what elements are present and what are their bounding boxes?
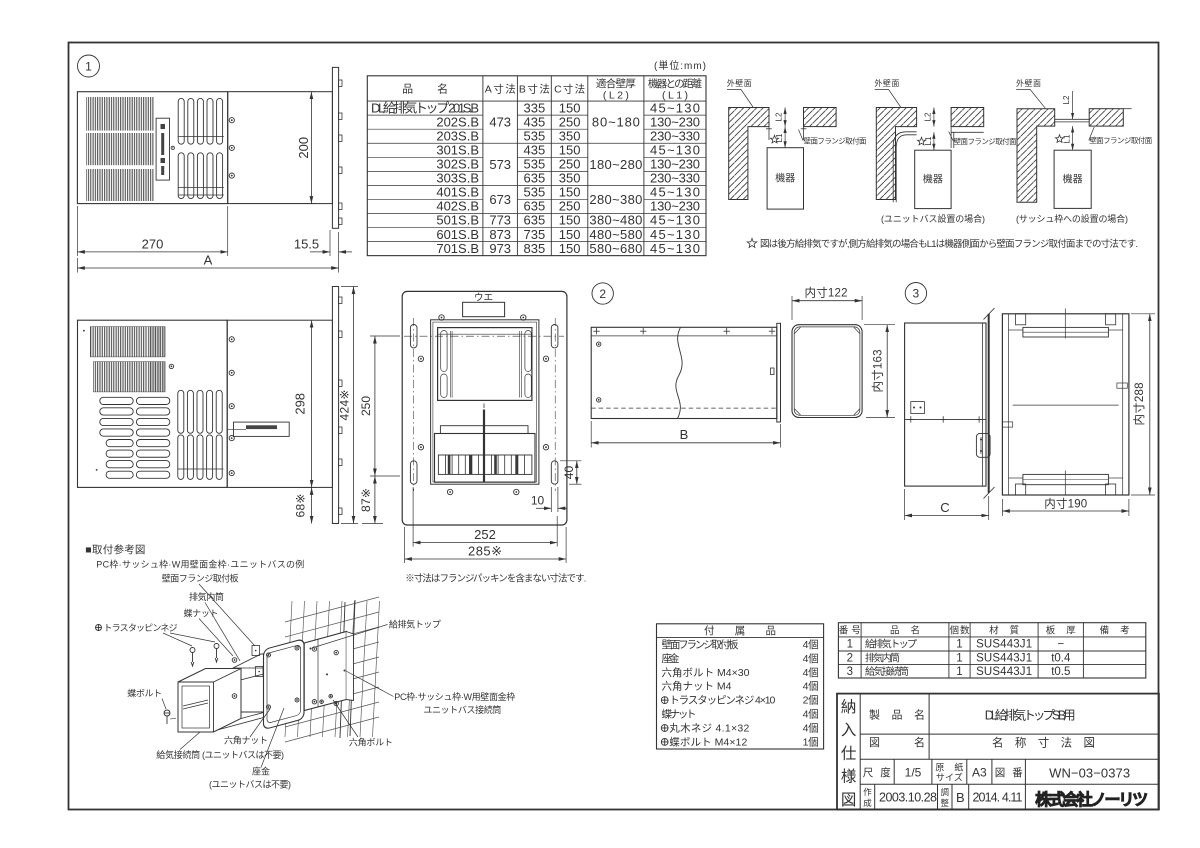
svg-text:302S.B: 302S.B	[436, 157, 479, 172]
svg-text:C寸法: C寸法	[554, 83, 585, 96]
svg-text:座金: 座金	[662, 652, 681, 665]
svg-text:203S.B: 203S.B	[436, 128, 479, 143]
svg-text:250: 250	[559, 157, 581, 172]
svg-text:2: 2	[847, 653, 853, 665]
svg-text:図 番: 図 番	[995, 767, 1023, 779]
svg-text:SUS443J1: SUS443J1	[976, 638, 1032, 650]
svg-text:付 属 品: 付 属 品	[704, 624, 776, 637]
svg-text:4個: 4個	[803, 721, 819, 734]
svg-text:773: 773	[489, 213, 511, 228]
svg-text:350: 350	[559, 128, 581, 143]
svg-text:六角ナット: 六角ナット	[224, 735, 268, 746]
svg-text:701S.B: 701S.B	[436, 241, 479, 256]
svg-text:298: 298	[293, 393, 308, 415]
svg-text:品 名: 品 名	[890, 624, 920, 636]
svg-text:4個: 4個	[803, 680, 819, 693]
svg-text:(ユニットバスは不要): (ユニットバスは不要)	[202, 750, 284, 760]
svg-text:六角ボルト: 六角ボルト	[349, 737, 393, 748]
svg-text:DL給排気トップ 201S.B: DL給排気トップ 201S.B	[371, 100, 479, 115]
svg-text:402S.B: 402S.B	[436, 199, 479, 214]
svg-text:機器との距離: 機器との距離	[648, 77, 703, 90]
svg-text:番号: 番号	[839, 624, 861, 636]
svg-text:蝶ボルト: 蝶ボルト	[127, 688, 162, 699]
svg-text:A3: A3	[972, 766, 987, 780]
svg-text:※寸法はフランジパッキンを含まない寸法です.: ※寸法はフランジパッキンを含まない寸法です.	[405, 573, 586, 585]
svg-text:1: 1	[85, 60, 92, 74]
svg-text:内寸163: 内寸163	[871, 350, 885, 393]
svg-text:130~230: 130~230	[650, 157, 700, 172]
svg-text:仕: 仕	[841, 744, 857, 762]
svg-text:280~380: 280~380	[589, 192, 642, 207]
svg-text:4個: 4個	[803, 652, 819, 665]
svg-text:150: 150	[559, 142, 581, 157]
svg-text:45~130: 45~130	[650, 227, 700, 242]
svg-text:180~280: 180~280	[589, 157, 642, 172]
svg-text:473: 473	[489, 115, 511, 130]
svg-text:機器: 機器	[775, 172, 795, 185]
svg-text:301S.B: 301S.B	[436, 142, 479, 157]
svg-text:(サッシュ枠への設置の場合): (サッシュ枠への設置の場合)	[1016, 213, 1128, 224]
svg-text:335: 335	[524, 100, 546, 115]
svg-text:入: 入	[841, 722, 857, 739]
svg-text:535: 535	[524, 157, 546, 172]
svg-text:270: 270	[142, 236, 164, 251]
svg-text:635: 635	[524, 213, 546, 228]
svg-text:六角ボルト M4×30: 六角ボルト M4×30	[662, 667, 750, 679]
svg-text:板 厚: 板 厚	[1046, 624, 1076, 636]
svg-text:B: B	[680, 427, 689, 442]
svg-text:SUS443J1: SUS443J1	[976, 666, 1032, 678]
svg-text:排気内筒: 排気内筒	[189, 591, 224, 602]
svg-text:t0.5: t0.5	[1051, 666, 1070, 678]
svg-text:4個: 4個	[803, 708, 819, 721]
svg-text:735: 735	[524, 227, 546, 242]
svg-text:外壁面: 外壁面	[874, 78, 899, 88]
svg-text:壁面フランジ取付面: 壁面フランジ取付面	[954, 136, 1018, 146]
svg-text:80~180: 80~180	[592, 115, 640, 130]
svg-text:673: 673	[489, 192, 511, 207]
svg-text:壁面フランジ取付面: 壁面フランジ取付面	[804, 136, 868, 146]
svg-text:535: 535	[524, 185, 546, 200]
svg-text:壁面フランジ取付板: 壁面フランジ取付板	[162, 573, 239, 584]
svg-text:501S.B: 501S.B	[436, 213, 479, 228]
svg-text:壁面フランジ取付面: 壁面フランジ取付面	[1089, 135, 1153, 145]
svg-text:蝶ナット: 蝶ナット	[184, 608, 219, 619]
svg-text:150: 150	[559, 241, 581, 256]
svg-text:150: 150	[559, 185, 581, 200]
svg-text:380~480: 380~480	[589, 213, 642, 228]
svg-text:備 考: 備 考	[1100, 624, 1130, 636]
svg-text:1/5: 1/5	[905, 766, 922, 780]
svg-text:45~130: 45~130	[650, 100, 700, 115]
svg-text:納: 納	[841, 698, 857, 716]
svg-text:名 称 寸 法 図: 名 称 寸 法 図	[992, 736, 1095, 750]
svg-text:製 品 名: 製 品 名	[869, 708, 925, 722]
svg-text:六角ナット M4: 六角ナット M4	[662, 681, 732, 693]
svg-text:250: 250	[559, 199, 581, 214]
svg-text:機器: 機器	[1063, 173, 1083, 186]
svg-text:外壁面: 外壁面	[1016, 78, 1041, 88]
svg-text:2: 2	[599, 287, 606, 301]
svg-text:L2: L2	[923, 112, 932, 121]
svg-text:内寸122: 内寸122	[805, 286, 848, 300]
svg-text:424※: 424※	[338, 390, 352, 421]
svg-text:トラスタッピンネジ: トラスタッピンネジ	[104, 623, 178, 633]
svg-text:130~230: 130~230	[650, 114, 700, 129]
svg-text:給排気トップ: 給排気トップ	[389, 619, 441, 630]
svg-text:サイズ: サイズ	[936, 772, 963, 783]
svg-text:250: 250	[559, 114, 581, 129]
svg-text:150: 150	[559, 100, 581, 115]
svg-text:C: C	[940, 500, 949, 515]
svg-text:68※: 68※	[294, 494, 308, 518]
svg-text:3: 3	[913, 287, 920, 301]
svg-text:B寸法: B寸法	[519, 83, 550, 96]
svg-text:1: 1	[847, 638, 853, 650]
svg-text:L1: L1	[775, 133, 784, 142]
svg-text:成: 成	[863, 798, 872, 808]
svg-text:図 名: 図 名	[869, 735, 925, 749]
svg-text:A寸法: A寸法	[485, 83, 516, 96]
svg-text:10: 10	[531, 494, 545, 508]
svg-text:調: 調	[940, 787, 949, 797]
svg-text:作: 作	[863, 787, 872, 797]
svg-text:L1: L1	[924, 136, 933, 145]
svg-text:45~130: 45~130	[650, 185, 700, 200]
svg-text:3: 3	[847, 666, 853, 678]
svg-text:250: 250	[359, 396, 373, 416]
svg-text:L2: L2	[1062, 95, 1071, 104]
svg-text:835: 835	[524, 241, 546, 256]
svg-text:200: 200	[296, 137, 311, 159]
svg-text:573: 573	[489, 157, 511, 172]
svg-text:435: 435	[524, 114, 546, 129]
svg-text:150: 150	[559, 213, 581, 228]
svg-text:230~330: 230~330	[650, 171, 700, 186]
svg-text:DL給排気トップS.B用: DL給排気トップS.B用	[985, 708, 1076, 723]
svg-text:給排気トップ: 給排気トップ	[865, 637, 917, 650]
svg-text:87※: 87※	[359, 488, 373, 512]
svg-text:品 名: 品 名	[402, 82, 448, 96]
svg-text:130~230: 130~230	[650, 199, 700, 214]
svg-text:株式会社ノーリツ: 株式会社ノーリツ	[1035, 790, 1148, 809]
svg-text:1: 1	[956, 666, 962, 678]
svg-text:873: 873	[489, 227, 511, 242]
svg-text:トラスタッピンネジ 4×10: トラスタッピンネジ 4×10	[669, 695, 775, 707]
svg-text:150: 150	[559, 227, 581, 242]
svg-text:2個: 2個	[803, 694, 819, 707]
svg-text:PC枠·サッシュ枠·W用壁面金枠·ユニットバスの例: PC枠·サッシュ枠·W用壁面金枠·ユニットバスの例	[96, 559, 304, 570]
svg-text:202S.B: 202S.B	[436, 114, 479, 129]
svg-text:ユニットバス接続筒: ユニットバス接続筒	[423, 704, 501, 715]
svg-text:303S.B: 303S.B	[436, 171, 479, 186]
svg-text:(L2): (L2)	[603, 90, 629, 102]
svg-text:2014. 4.11: 2014. 4.11	[973, 791, 1023, 805]
svg-text:L2: L2	[775, 112, 784, 121]
svg-text:635: 635	[524, 199, 546, 214]
svg-text:252: 252	[474, 527, 496, 542]
svg-text:1: 1	[956, 653, 962, 665]
svg-text:45~130: 45~130	[650, 213, 700, 228]
svg-text:4個: 4個	[803, 638, 819, 651]
svg-text:給気接続筒: 給気接続筒	[865, 665, 909, 678]
svg-text:蝶ボルト M4×12: 蝶ボルト M4×12	[669, 735, 747, 748]
svg-text:401S.B: 401S.B	[436, 185, 479, 200]
svg-text:SUS443J1: SUS443J1	[976, 653, 1032, 665]
svg-text:480~580: 480~580	[589, 227, 642, 242]
svg-text:A: A	[204, 253, 213, 268]
svg-text:L1: L1	[1063, 134, 1072, 143]
svg-text:排気内筒: 排気内筒	[865, 652, 900, 665]
svg-text:外壁面: 外壁面	[727, 78, 752, 88]
svg-text:40: 40	[562, 466, 576, 480]
svg-text:350: 350	[559, 171, 581, 186]
svg-text:2003.10.28: 2003.10.28	[879, 791, 937, 805]
svg-text:個数: 個数	[950, 624, 970, 636]
svg-text:尺 度: 尺 度	[863, 766, 892, 779]
svg-text:壁面フランジ取付板: 壁面フランジ取付板	[662, 638, 740, 651]
svg-text:WN−03−0373: WN−03−0373	[1049, 766, 1130, 781]
svg-text:材 質: 材 質	[989, 624, 1019, 636]
svg-text:内寸288: 内寸288	[1132, 383, 1146, 426]
svg-text:原 紙: 原 紙	[935, 762, 963, 773]
svg-text:適合壁厚: 適合壁厚	[596, 77, 637, 90]
svg-text:機器: 機器	[923, 173, 943, 186]
svg-text:蝶ナット: 蝶ナット	[662, 708, 697, 721]
svg-text:601S.B: 601S.B	[436, 227, 479, 242]
svg-text:B: B	[956, 790, 965, 805]
svg-text:45~130: 45~130	[650, 142, 700, 157]
svg-text:(ユニットバス設置の場合): (ユニットバス設置の場合)	[881, 213, 985, 224]
svg-text:(単位:mm): (単位:mm)	[654, 59, 706, 72]
svg-text:4個: 4個	[803, 666, 819, 679]
svg-text:(ユニットバスは不要): (ユニットバスは不要)	[209, 780, 291, 790]
svg-text:様: 様	[841, 768, 857, 786]
svg-text:−: −	[1057, 638, 1064, 650]
svg-text:t0.4: t0.4	[1051, 653, 1071, 665]
svg-text:580~680: 580~680	[589, 241, 642, 256]
svg-text:丸木ネジ 4.1×32: 丸木ネジ 4.1×32	[669, 721, 749, 734]
svg-text:1: 1	[956, 638, 962, 650]
svg-text:図は後方給排気ですが,側方給排気の場合もL1は機器側面から壁: 図は後方給排気ですが,側方給排気の場合もL1は機器側面から壁面フランジ取付面まで…	[760, 238, 1138, 250]
svg-text:230~330: 230~330	[650, 128, 700, 143]
svg-text:15.5: 15.5	[294, 236, 319, 251]
svg-text:45~130: 45~130	[650, 241, 700, 256]
svg-text:535: 535	[524, 128, 546, 143]
svg-text:1個: 1個	[803, 735, 819, 748]
svg-text:■取付参考図: ■取付参考図	[85, 543, 145, 556]
svg-text:給気接続筒: 給気接続筒	[156, 749, 200, 760]
svg-text:整: 整	[940, 798, 949, 808]
svg-text:内寸190: 内寸190	[1044, 496, 1087, 510]
svg-text:285※: 285※	[468, 543, 502, 558]
svg-text:PC枠·サッシュ枠·W用壁面金枠: PC枠·サッシュ枠·W用壁面金枠	[394, 691, 515, 702]
svg-text:973: 973	[489, 241, 511, 256]
svg-text:435: 435	[524, 142, 546, 157]
svg-text:635: 635	[524, 171, 546, 186]
svg-text:図: 図	[841, 792, 857, 809]
